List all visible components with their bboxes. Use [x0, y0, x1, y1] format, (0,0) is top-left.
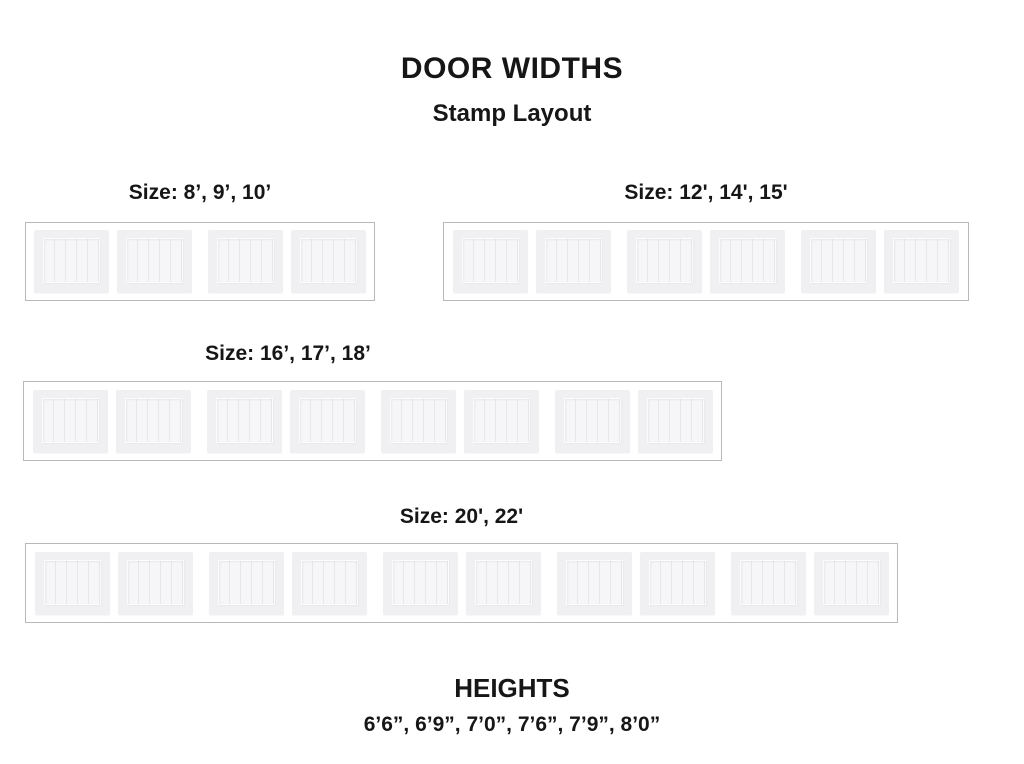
- size-label-8-9-10: Size: 8’, 9’, 10’: [25, 180, 375, 206]
- stamp-section: [627, 230, 785, 293]
- door-panel: [207, 390, 282, 453]
- door-panel: [290, 390, 365, 453]
- door-panel: [209, 552, 284, 615]
- size-label-20-22: Size: 20', 22': [25, 504, 898, 530]
- door-panel: [627, 230, 702, 293]
- door-panel: [34, 230, 109, 293]
- stamp-section: [34, 230, 192, 293]
- door-panel: [291, 230, 366, 293]
- door-panel: [383, 552, 458, 615]
- door-panel: [640, 552, 715, 615]
- door-panel: [117, 230, 192, 293]
- stamp-section: [555, 390, 713, 453]
- size-label-16-17-18: Size: 16’, 17’, 18’: [23, 341, 553, 367]
- stamp-section: [383, 552, 541, 615]
- door-panel: [381, 390, 456, 453]
- door-panel: [710, 230, 785, 293]
- stamp-section: [35, 552, 193, 615]
- stamp-section: [208, 230, 366, 293]
- door-panel: [464, 390, 539, 453]
- door-panel: [536, 230, 611, 293]
- stamp-section: [731, 552, 889, 615]
- stamp-section: [557, 552, 715, 615]
- size-label-12-14-15: Size: 12', 14', 15': [443, 180, 969, 206]
- page-title: DOOR WIDTHS: [0, 50, 1024, 88]
- door-panel: [116, 390, 191, 453]
- door-panel: [33, 390, 108, 453]
- page: DOOR WIDTHS Stamp Layout Size: 8’, 9’, 1…: [0, 0, 1024, 764]
- door-panel: [884, 230, 959, 293]
- stamp-section: [209, 552, 367, 615]
- door-panel: [35, 552, 110, 615]
- door-panel: [731, 552, 806, 615]
- door-panel: [466, 552, 541, 615]
- door-panel: [638, 390, 713, 453]
- door-panel: [557, 552, 632, 615]
- page-subtitle: Stamp Layout: [0, 99, 1024, 129]
- door-panel: [555, 390, 630, 453]
- door-panel: [292, 552, 367, 615]
- door-assembly-16-17-18: [23, 381, 722, 461]
- door-panel: [118, 552, 193, 615]
- heights-values: 6’6”, 6’9”, 7’0”, 7’6”, 7’9”, 8’0”: [0, 711, 1024, 738]
- stamp-section: [453, 230, 611, 293]
- stamp-section: [207, 390, 365, 453]
- door-assembly-8-9-10: [25, 222, 375, 301]
- door-panel: [208, 230, 283, 293]
- stamp-section: [801, 230, 959, 293]
- door-assembly-12-14-15: [443, 222, 969, 301]
- door-panel: [814, 552, 889, 615]
- door-panel: [801, 230, 876, 293]
- stamp-section: [381, 390, 539, 453]
- stamp-section: [33, 390, 191, 453]
- door-assembly-20-22: [25, 543, 898, 623]
- door-panel: [453, 230, 528, 293]
- heights-title: HEIGHTS: [0, 672, 1024, 704]
